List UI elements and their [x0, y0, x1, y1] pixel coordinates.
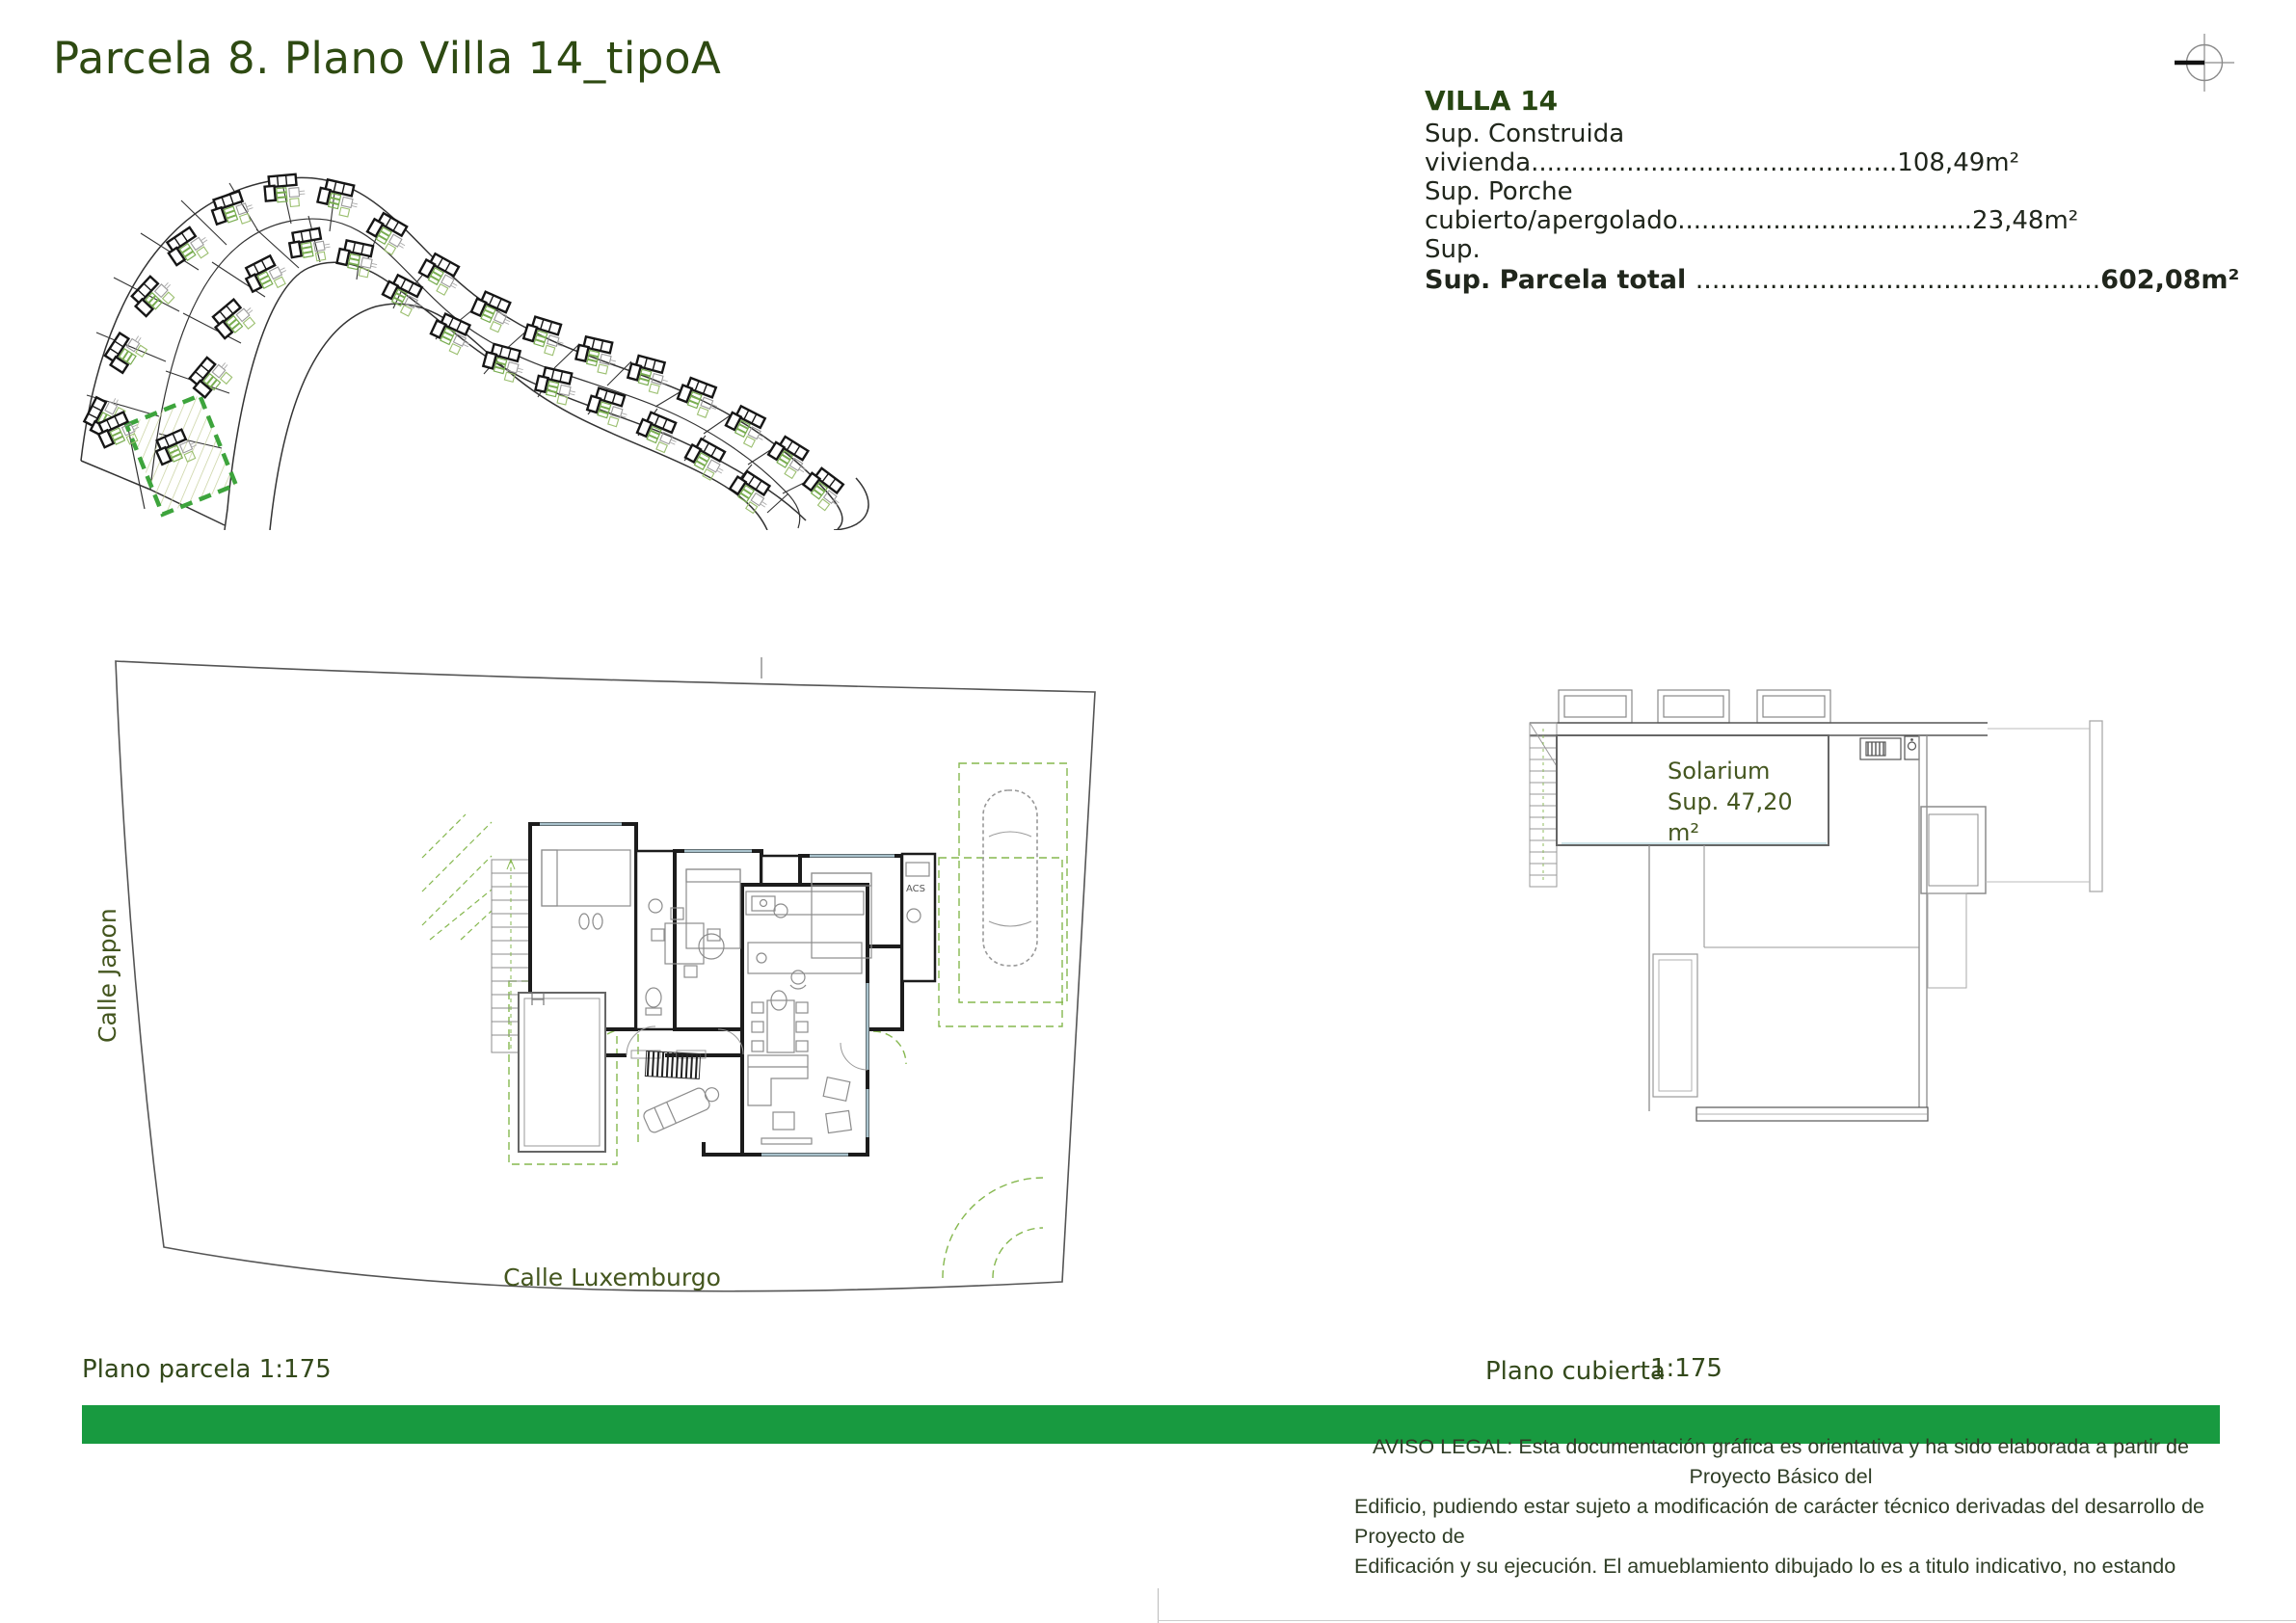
solarium-label-line1: Solarium [1668, 758, 1770, 785]
legal-line-2: Proyecto Básico del [1354, 1462, 2207, 1492]
sun-lounger [642, 1081, 723, 1134]
roof-stairs [1530, 723, 1557, 887]
street-label-left: Calle Japon [93, 908, 121, 1043]
sup-parcela-total: Sup. Parcela total .....................… [1425, 266, 2157, 295]
registration-mark-icon [2153, 25, 2296, 102]
roof-plan-drawing: Solarium Sup. 47,20 m² [1523, 665, 2178, 1147]
site-plan-map [67, 154, 925, 530]
total-dots: ........................................… [1695, 265, 2101, 295]
plan-sheet: Parcela 8. Plano Villa 14_tipoA [0, 0, 2296, 1623]
roof-plan-scale: 1:175 [1650, 1354, 1722, 1383]
sup-porche-value: cubierto/apergolado.....................… [1425, 206, 2157, 235]
solarium-label-line2: Sup. 47,20 [1668, 788, 1793, 815]
legal-line-1: AVISO LEGAL: Esta documentación gráfica … [1354, 1432, 2207, 1462]
total-value: 602,08m² [2100, 265, 2239, 295]
sup-porche-label: Sup. Porche [1425, 177, 2157, 206]
sup-construida-label: Sup. Construida [1425, 120, 2157, 148]
villa-info-panel: VILLA 14 Sup. Construida vivienda.......… [1425, 87, 2157, 295]
street-label-bottom: Calle Luxemburgo [503, 1264, 721, 1291]
sup-label: Sup. [1425, 235, 2157, 264]
floor-plan-drawing: Calle Japon Calle Luxemburgo ACS [87, 617, 1108, 1330]
frame-line-horizontal [1158, 1620, 2296, 1621]
villa-heading: VILLA 14 [1425, 87, 2157, 116]
frame-line-vertical [1158, 1588, 1159, 1623]
acs-label: ACS [906, 884, 925, 894]
legal-notice: AVISO LEGAL: Esta documentación gráfica … [1354, 1432, 2207, 1582]
pool [519, 993, 605, 1152]
total-label: Sup. Parcela total [1425, 265, 1686, 295]
ac-unit-icon [1860, 736, 1919, 759]
outdoor-bench [645, 1051, 700, 1079]
legal-line-5: Edificación y su ejecución. El amueblami… [1354, 1552, 2207, 1582]
pergolas [1559, 690, 1830, 723]
floor-plan-caption: Plano parcela 1:175 [82, 1355, 332, 1384]
page-title: Parcela 8. Plano Villa 14_tipoA [53, 33, 721, 84]
sup-construida-value: vivienda................................… [1425, 148, 2157, 177]
legal-line-4: Proyecto de [1354, 1522, 2207, 1552]
legal-line-3: Edificio, pudiendo estar sujeto a modifi… [1354, 1492, 2207, 1522]
roof-plan-caption: Plano cubierta [1485, 1357, 1666, 1386]
solarium-label-line3: m² [1668, 819, 1699, 846]
car [983, 790, 1037, 966]
